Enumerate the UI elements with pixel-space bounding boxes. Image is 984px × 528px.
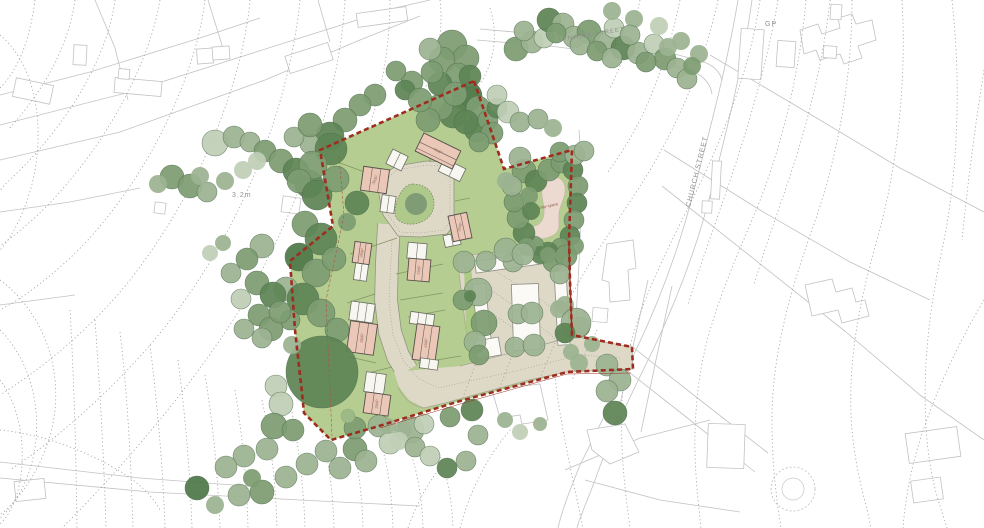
svg-text:29dP: 29dP: [416, 265, 422, 275]
svg-text:48dP: 48dP: [423, 338, 429, 348]
svg-text:38dP: 38dP: [359, 333, 365, 343]
svg-text:3.2m: 3.2m: [232, 192, 252, 199]
svg-text:GP: GP: [765, 21, 777, 28]
svg-text:28dP: 28dP: [374, 399, 380, 409]
